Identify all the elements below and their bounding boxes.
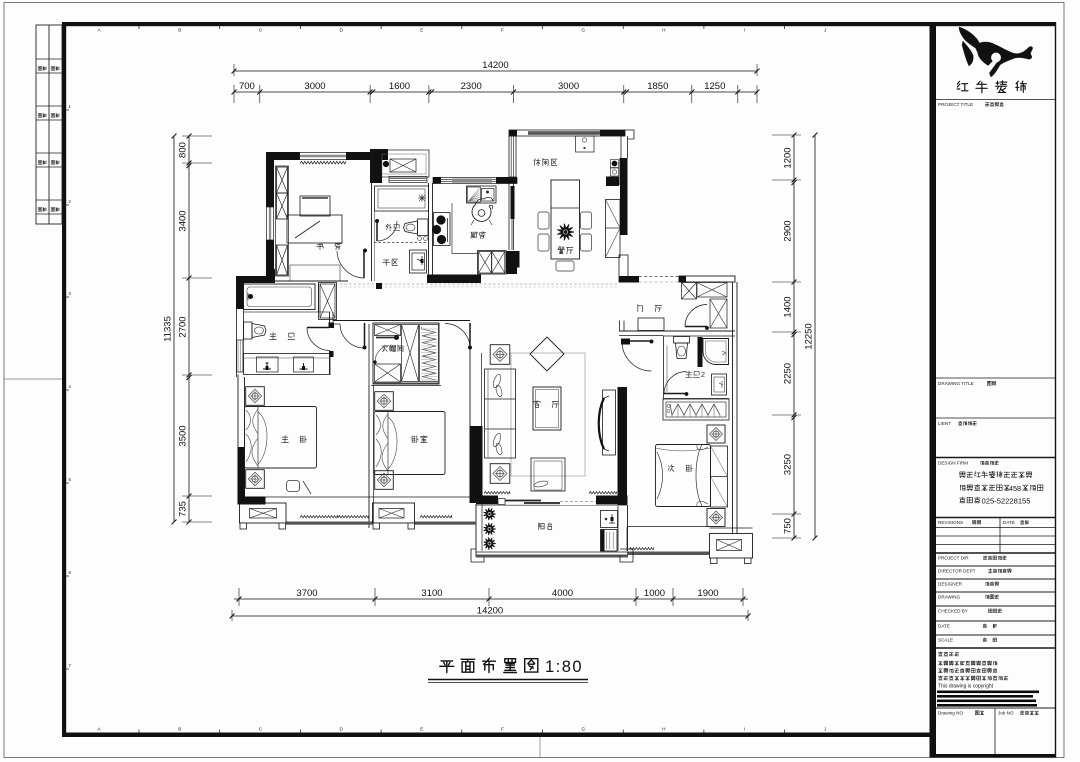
svg-text:2300: 2300 [461, 81, 482, 92]
svg-text:2900: 2900 [783, 220, 794, 241]
svg-text:3100: 3100 [421, 588, 442, 599]
svg-text:14200: 14200 [477, 606, 503, 617]
svg-text:DESIGNER: DESIGNER [938, 582, 963, 587]
svg-text:1900: 1900 [697, 588, 718, 599]
svg-text:700: 700 [239, 81, 255, 92]
svg-text:4000: 4000 [552, 588, 573, 599]
svg-text:735: 735 [178, 501, 189, 517]
svg-text:3000: 3000 [558, 81, 579, 92]
svg-text:1250: 1250 [704, 81, 725, 92]
svg-text:SCALE: SCALE [938, 638, 953, 643]
svg-text:14200: 14200 [482, 60, 508, 71]
svg-text:DRAWING: DRAWING [938, 595, 960, 600]
svg-text:025-52228155: 025-52228155 [982, 497, 1031, 506]
svg-text:G: G [581, 727, 585, 732]
svg-text:458: 458 [1009, 484, 1021, 493]
svg-text:J: J [824, 28, 826, 33]
svg-text:G: G [581, 28, 585, 33]
svg-text:REVISIONS: REVISIONS [938, 520, 963, 525]
svg-text:E: E [420, 28, 423, 33]
svg-text:B: B [178, 727, 181, 732]
svg-text:F: F [501, 28, 504, 33]
svg-text:3400: 3400 [178, 210, 189, 231]
svg-text:2250: 2250 [783, 363, 794, 384]
svg-text:I: I [744, 28, 745, 33]
svg-text:11335: 11335 [163, 316, 174, 342]
svg-text:DATE: DATE [1003, 520, 1015, 525]
svg-text:H: H [662, 28, 665, 33]
svg-text:1:80: 1:80 [545, 658, 583, 676]
svg-text:E: E [420, 727, 423, 732]
svg-text:1000: 1000 [644, 588, 665, 599]
svg-text:B: B [178, 28, 181, 33]
svg-text:A: A [97, 727, 100, 732]
svg-text:H: H [662, 727, 665, 732]
svg-text:2700: 2700 [178, 316, 189, 337]
svg-text:F: F [501, 727, 504, 732]
svg-text:1200: 1200 [783, 147, 794, 168]
svg-text:J: J [824, 727, 826, 732]
svg-text:I: I [744, 727, 745, 732]
svg-text:3000: 3000 [304, 81, 325, 92]
svg-text:3250: 3250 [783, 454, 794, 475]
svg-text:DATE: DATE [938, 624, 950, 629]
svg-text:2: 2 [701, 370, 705, 379]
svg-text:Drawing NO: Drawing NO [938, 711, 963, 716]
svg-text:800: 800 [178, 142, 189, 158]
svg-text:PROJECT DIR: PROJECT DIR [938, 556, 969, 561]
svg-text:A: A [97, 28, 100, 33]
svg-text:CHECKED BY: CHECKED BY [938, 609, 968, 614]
svg-text:Job NO: Job NO [998, 711, 1014, 716]
svg-text:1600: 1600 [389, 81, 410, 92]
svg-text:DESIGN FIRM: DESIGN FIRM [938, 461, 968, 466]
svg-text:DIRECTOR DEPT: DIRECTOR DEPT [938, 569, 976, 574]
svg-text:PROJECT TITLE: PROJECT TITLE [938, 102, 973, 107]
svg-text:12250: 12250 [804, 323, 815, 349]
svg-text:1400: 1400 [783, 296, 794, 317]
svg-text:3700: 3700 [296, 588, 317, 599]
svg-text:This drawing is copyright: This drawing is copyright [938, 684, 994, 690]
svg-text:DRAWING TITLE: DRAWING TITLE [938, 381, 974, 386]
svg-text:1850: 1850 [647, 81, 668, 92]
svg-text:LIENT: LIENT [938, 421, 951, 426]
svg-text:750: 750 [783, 518, 794, 534]
svg-text:3500: 3500 [178, 425, 189, 446]
